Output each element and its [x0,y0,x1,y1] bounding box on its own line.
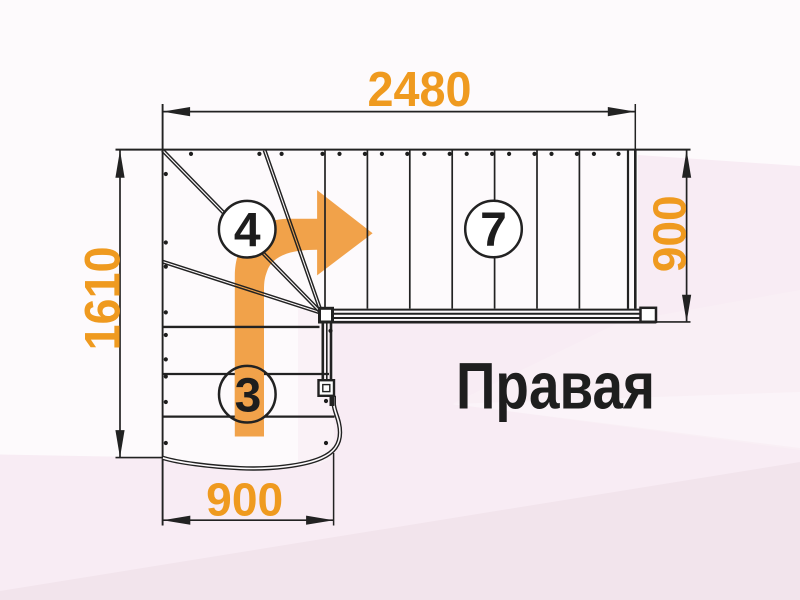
svg-text:4: 4 [234,204,261,257]
svg-text:2480: 2480 [368,63,472,117]
svg-text:Правая: Правая [456,349,655,423]
svg-text:900: 900 [644,195,696,272]
svg-text:1610: 1610 [75,247,131,351]
svg-text:900: 900 [206,474,283,526]
svg-text:7: 7 [480,204,507,257]
svg-text:3: 3 [235,369,262,422]
